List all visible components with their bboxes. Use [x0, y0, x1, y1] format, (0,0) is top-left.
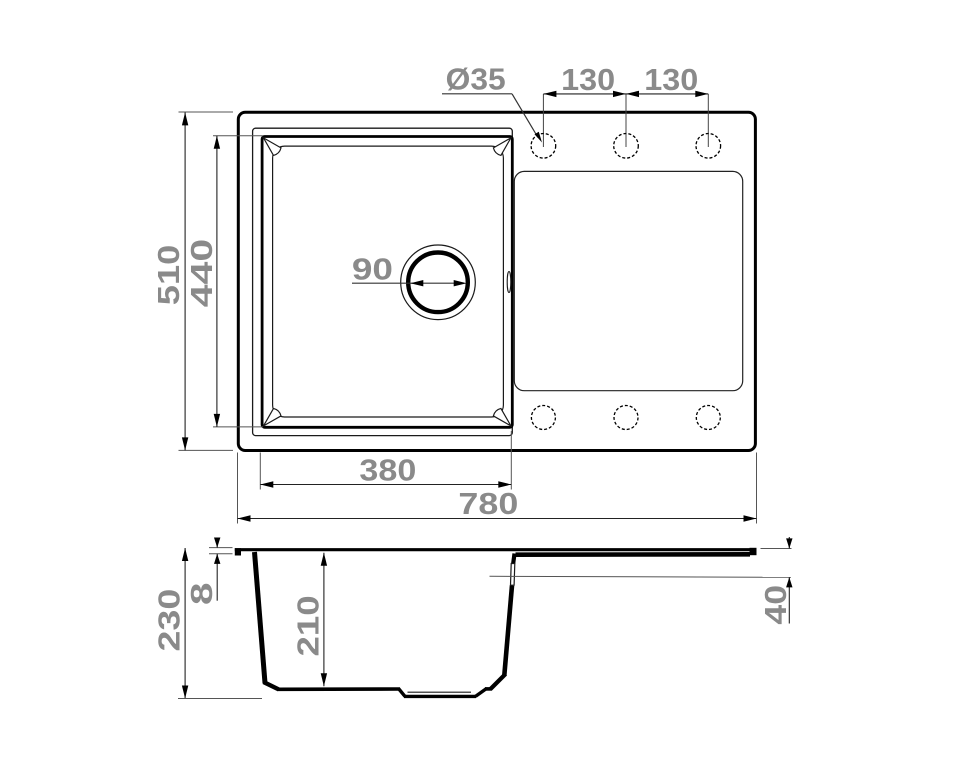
svg-text:510: 510: [151, 245, 186, 306]
svg-text:90: 90: [352, 251, 393, 286]
svg-text:130: 130: [561, 62, 615, 97]
svg-text:130: 130: [644, 62, 698, 97]
svg-text:Ø35: Ø35: [446, 62, 506, 97]
svg-text:210: 210: [291, 595, 326, 656]
svg-text:230: 230: [152, 589, 187, 652]
svg-text:780: 780: [458, 486, 518, 521]
svg-text:380: 380: [359, 452, 416, 487]
svg-text:40: 40: [758, 585, 793, 625]
svg-text:8: 8: [184, 583, 219, 606]
svg-text:440: 440: [184, 239, 219, 308]
